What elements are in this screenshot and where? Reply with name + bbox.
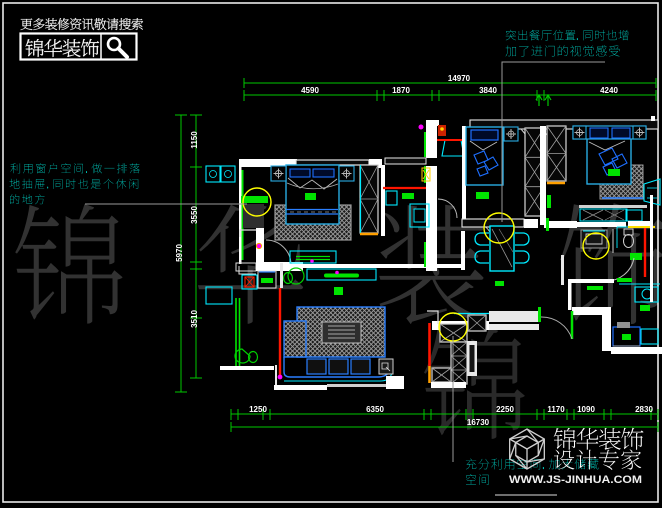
svg-text:1250: 1250 [249,405,267,414]
svg-text:3840: 3840 [479,86,497,95]
svg-text:1170: 1170 [547,405,565,414]
svg-text:WWW.JS-JINHUA.COM: WWW.JS-JINHUA.COM [509,474,642,486]
svg-text:6350: 6350 [366,405,384,414]
svg-text:14970: 14970 [448,74,471,83]
svg-text:16730: 16730 [467,418,490,427]
svg-text:1870: 1870 [392,86,410,95]
svg-text:4590: 4590 [301,86,319,95]
svg-text:3510: 3510 [190,310,199,328]
svg-text:1090: 1090 [577,405,595,414]
svg-text:5970: 5970 [175,244,184,262]
svg-text:4240: 4240 [600,86,618,95]
svg-text:3550: 3550 [190,206,199,224]
svg-text:2830: 2830 [635,405,653,414]
svg-text:2250: 2250 [496,405,514,414]
svg-text:1150: 1150 [190,131,199,149]
